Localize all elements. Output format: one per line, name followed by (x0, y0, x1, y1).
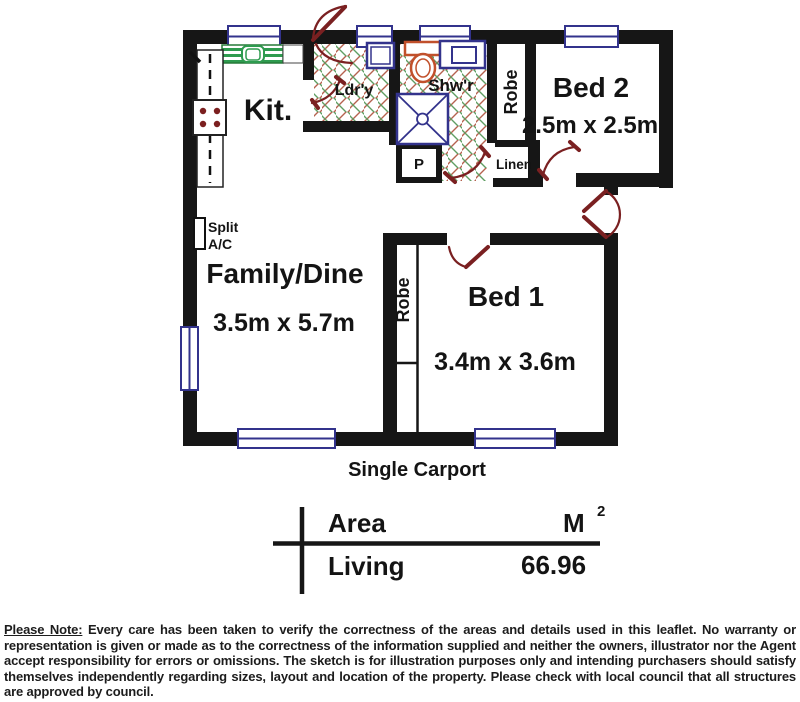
bench-white (283, 45, 303, 63)
kitchen-sink-bowl (246, 49, 260, 60)
window-bed1-bottom (475, 429, 555, 448)
label-robe-bed1: Robe (393, 278, 413, 323)
wall-laundry-bottom (303, 121, 398, 132)
label-pantry: P (414, 156, 424, 173)
wall-bed2-bottom (576, 173, 673, 187)
label-robe-bed2: Robe (501, 70, 521, 115)
kitchen-bench (222, 45, 303, 63)
area-table: Area M 2 Living 66.96 (273, 503, 605, 594)
wall-right-bed2 (659, 30, 673, 188)
label-bed1: Bed 1 (468, 281, 544, 312)
floor-plan-svg: Kit. Ldr'y Shw'r P Linen Robe Bed 2 2.5m… (0, 0, 800, 622)
label-laundry: Ldr'y (335, 82, 374, 99)
toilet-bowl-inner (416, 59, 430, 77)
table-row-living: Living (328, 551, 405, 581)
label-bed2: Bed 2 (553, 72, 629, 103)
burner (200, 121, 206, 127)
wall-shower-right (487, 40, 497, 143)
table-row-living-value: 66.96 (521, 550, 586, 580)
table-header-area: Area (328, 508, 386, 538)
door-bed2 (539, 142, 579, 179)
label-family: Family/Dine (206, 258, 363, 289)
label-bed2-dims: 2.5m x 2.5m (522, 112, 658, 139)
disclaimer-text: Please Note: Every care has been taken t… (2, 622, 798, 700)
wall-bed1-top-right (490, 233, 618, 245)
label-linen: Linen (496, 157, 532, 172)
window-family-left (181, 327, 198, 390)
shower-base (397, 94, 448, 144)
window-bed2 (565, 26, 618, 47)
wall-bed1-top-left (383, 233, 447, 245)
disclaimer-label: Please Note: (4, 622, 82, 637)
wall-kitchen-laundry (303, 44, 314, 80)
burner (214, 121, 220, 127)
split-ac-unit (194, 218, 205, 249)
door-entry-double (584, 191, 620, 237)
cooktop (193, 100, 226, 135)
table-header-unit: M (563, 508, 585, 538)
window-family-bottom (238, 429, 335, 448)
shower-drain (417, 114, 428, 125)
vanity (440, 41, 485, 68)
label-carport: Single Carport (348, 459, 486, 481)
label-split-ac-1: Split (208, 219, 239, 235)
floor-plan: Kit. Ldr'y Shw'r P Linen Robe Bed 2 2.5m… (0, 0, 800, 622)
tub-inner (371, 47, 390, 64)
table-header-unit-sup: 2 (597, 503, 605, 520)
door-bed1 (449, 247, 488, 267)
label-family-dims: 3.5m x 5.7m (213, 309, 355, 337)
laundry-tub (367, 43, 394, 68)
wall-linen-bottom (493, 178, 536, 187)
wall-right-bed1 (604, 233, 618, 446)
burner (200, 108, 206, 114)
wall-bed1-left (383, 245, 397, 432)
label-kitchen: Kit. (244, 94, 292, 127)
robe-bed1-partition (397, 245, 418, 432)
window-kitchen (228, 26, 280, 47)
disclaimer-body: Every care has been taken to verify the … (4, 622, 796, 699)
label-split-ac-2: A/C (208, 236, 232, 252)
label-shower: Shw'r (428, 76, 474, 95)
burner (214, 108, 220, 114)
vanity-basin (452, 47, 476, 63)
label-bed1-dims: 3.4m x 3.6m (434, 348, 576, 376)
